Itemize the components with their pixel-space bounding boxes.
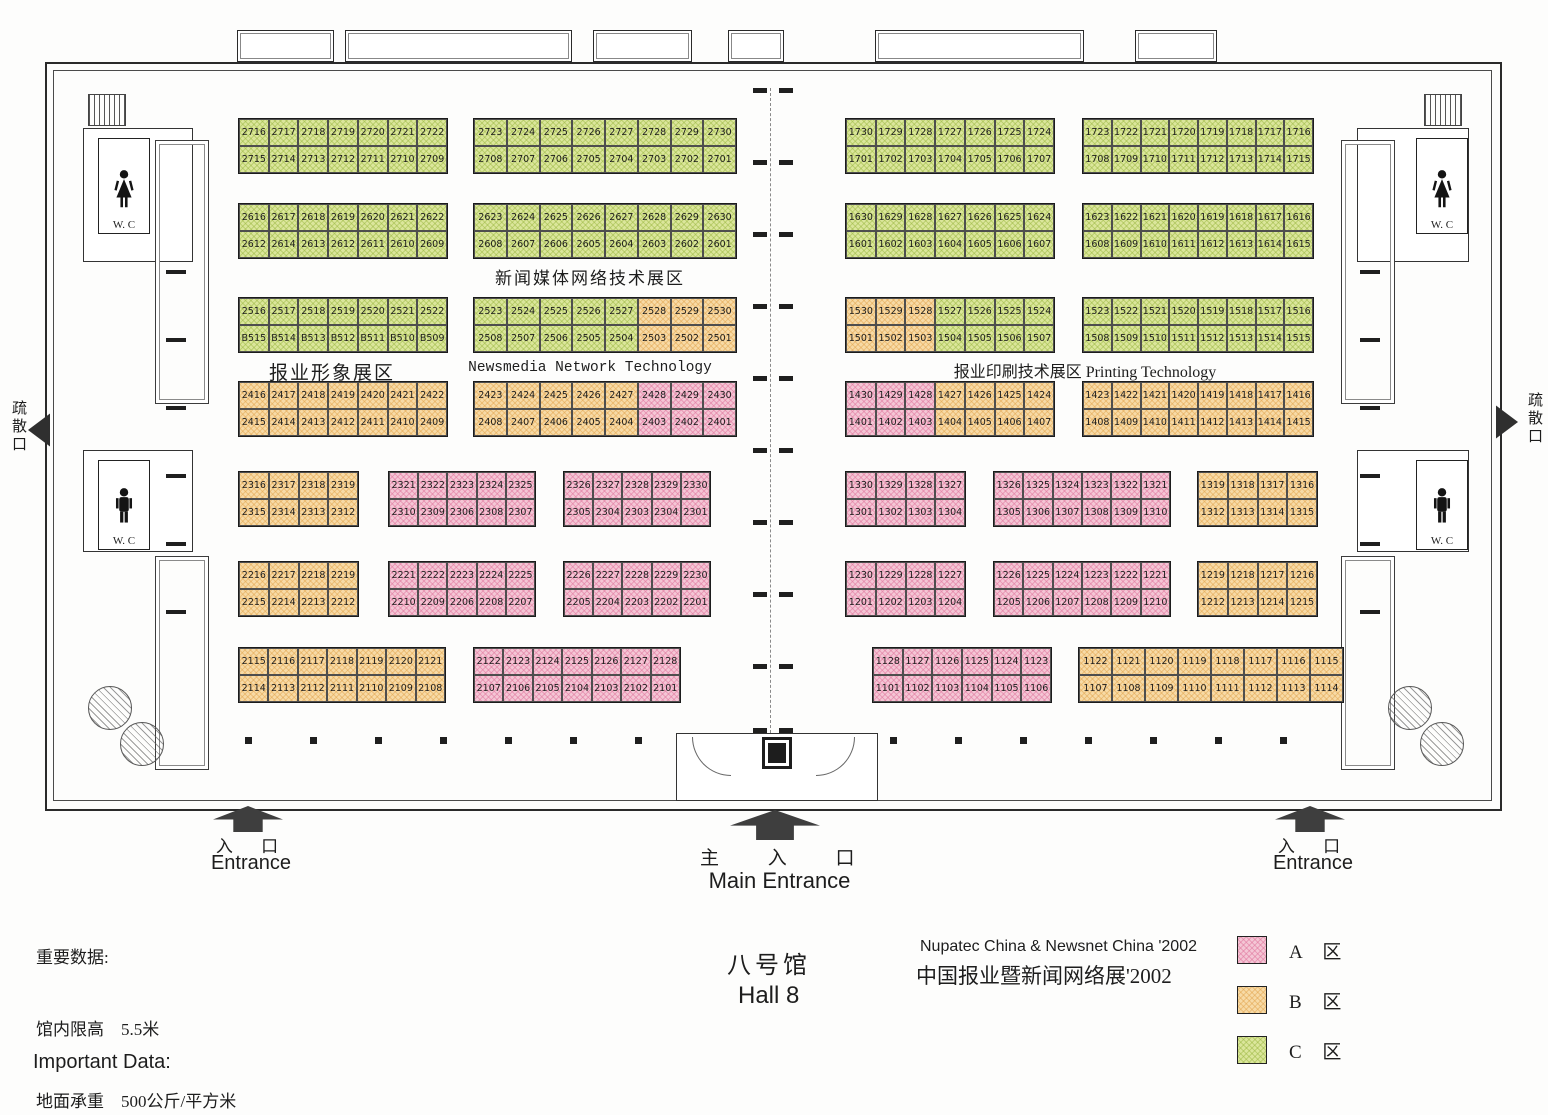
booth-cell: 2206 bbox=[447, 589, 476, 616]
legend-row-b: B 区 bbox=[1237, 986, 1349, 1014]
booth-cell: 2328 bbox=[622, 472, 651, 499]
wc-left-top: W. C bbox=[98, 138, 150, 234]
booth-cell: 2422 bbox=[417, 382, 447, 409]
booth-cell: 2721 bbox=[388, 119, 418, 146]
column-dot bbox=[635, 737, 642, 744]
booth-cell: 2313 bbox=[299, 499, 329, 526]
booth-cell: 2218 bbox=[299, 562, 329, 589]
booth-cell: 2308 bbox=[477, 499, 506, 526]
booth-cell: 2414 bbox=[269, 409, 299, 436]
booth-cell: 1115 bbox=[1310, 648, 1343, 675]
booth-cell: 2325 bbox=[506, 472, 535, 499]
booth-cell: 1528 bbox=[905, 298, 935, 325]
booth-cell: 1716 bbox=[1284, 119, 1313, 146]
booth-cell: 2105 bbox=[533, 675, 562, 702]
booth-cell: 1323 bbox=[1082, 472, 1111, 499]
booth-cell: 2406 bbox=[540, 409, 573, 436]
booth-cell: 2214 bbox=[269, 589, 299, 616]
booth-cell: 1611 bbox=[1169, 231, 1198, 258]
booth-block: 13191318131713161312131313141315 bbox=[1197, 471, 1318, 527]
booth-cell: 2201 bbox=[681, 589, 710, 616]
booth-cell: 1306 bbox=[1023, 499, 1052, 526]
booth-block: 22162217221822192215221422132212 bbox=[238, 561, 359, 617]
booth-cell: 2402 bbox=[671, 409, 704, 436]
evac-exit-right-label: 疏散口 bbox=[1524, 392, 1545, 446]
booth-cell: 2413 bbox=[298, 409, 328, 436]
booth-block: 1122112111201119111811171116111511071108… bbox=[1078, 647, 1344, 703]
booth-cell: 2125 bbox=[562, 648, 591, 675]
booth-cell: 2703 bbox=[638, 146, 671, 173]
booth-cell: 2611 bbox=[358, 231, 388, 258]
roof-monitor bbox=[345, 30, 572, 62]
column-tick bbox=[779, 728, 793, 733]
booth-cell: 1417 bbox=[1256, 382, 1285, 409]
booth-cell: 1723 bbox=[1083, 119, 1112, 146]
booth-cell: 2529 bbox=[671, 298, 704, 325]
column-tick bbox=[1360, 338, 1380, 342]
booth-cell: 1303 bbox=[906, 499, 936, 526]
booth-cell: 1217 bbox=[1258, 562, 1288, 589]
booth-cell: 1504 bbox=[935, 325, 965, 352]
booth-cell: 2219 bbox=[328, 562, 358, 589]
booth-cell: 1107 bbox=[1079, 675, 1112, 702]
booth-cell: 1315 bbox=[1287, 499, 1317, 526]
booth-cell: 2625 bbox=[540, 204, 573, 231]
booth-cell: 2604 bbox=[605, 231, 638, 258]
booth-cell: 1522 bbox=[1112, 298, 1141, 325]
booth-cell: 1409 bbox=[1112, 409, 1141, 436]
booth-block: 2115211621172118211921202121211421132112… bbox=[238, 647, 446, 703]
booth-cell: 1125 bbox=[962, 648, 992, 675]
booth-cell: 2114 bbox=[239, 675, 268, 702]
booth-block: 13301329132813271301130213031304 bbox=[845, 471, 966, 527]
column-tick bbox=[166, 270, 186, 274]
booth-cell: 2111 bbox=[327, 675, 356, 702]
booth-cell: 1619 bbox=[1198, 204, 1227, 231]
booth-cell: 1328 bbox=[906, 472, 936, 499]
booth-cell: 1330 bbox=[846, 472, 876, 499]
booth-cell: 2612 bbox=[239, 231, 269, 258]
booth-cell: 2420 bbox=[358, 382, 388, 409]
booth-cell: 1713 bbox=[1227, 146, 1256, 173]
booth-cell: 1402 bbox=[876, 409, 906, 436]
booth-cell: 2230 bbox=[681, 562, 710, 589]
booth-cell: 2428 bbox=[638, 382, 671, 409]
booth-cell: 1508 bbox=[1083, 325, 1112, 352]
booth-cell: 2710 bbox=[388, 146, 418, 173]
booth-cell: 1715 bbox=[1284, 146, 1313, 173]
booth-cell: 1208 bbox=[1082, 589, 1111, 616]
important-data-en: Important Data: Limited Ceiling Height: … bbox=[33, 992, 360, 1115]
booth-cell: 2713 bbox=[298, 146, 328, 173]
booth-cell: 1127 bbox=[903, 648, 933, 675]
column-dot bbox=[890, 737, 897, 744]
column-tick bbox=[1360, 542, 1380, 546]
booth-cell: 2314 bbox=[269, 499, 299, 526]
area-label-printing: 报业印刷技术展区 Printing Technology bbox=[920, 358, 1250, 382]
booth-cell: 1607 bbox=[1024, 231, 1054, 258]
booth-block: 2423242424252426242724282429243024082407… bbox=[473, 381, 737, 437]
booth-block: 1326132513241323132213211305130613071308… bbox=[993, 471, 1171, 527]
booth-cell: 2412 bbox=[328, 409, 358, 436]
column-tick bbox=[779, 520, 793, 525]
booth-cell: 2110 bbox=[357, 675, 386, 702]
floor-plan: W. C W. C W. C W. C bbox=[0, 0, 1548, 1115]
booth-cell: 2522 bbox=[417, 298, 447, 325]
booth-block: 1423142214211420141914181417141614081409… bbox=[1082, 381, 1314, 437]
booth-cell: 2508 bbox=[474, 325, 507, 352]
booth-cell: 2215 bbox=[239, 589, 269, 616]
booth-cell: 2323 bbox=[447, 472, 476, 499]
booth-cell: 1209 bbox=[1111, 589, 1140, 616]
booth-cell: 1304 bbox=[935, 499, 965, 526]
spiral-stair bbox=[1388, 686, 1432, 730]
booth-cell: 2227 bbox=[593, 562, 622, 589]
booth-cell: 1603 bbox=[905, 231, 935, 258]
area-label-newsmedia-en: Newsmedia Network Technology bbox=[455, 360, 725, 376]
column-tick bbox=[779, 376, 793, 381]
booth-cell: 2605 bbox=[572, 231, 605, 258]
column-tick bbox=[753, 592, 767, 597]
booth-cell: 2528 bbox=[638, 298, 671, 325]
booth-cell: B512 bbox=[328, 325, 358, 352]
booth-cell: 1102 bbox=[903, 675, 933, 702]
booth-cell: 2723 bbox=[474, 119, 507, 146]
booth-cell: 1721 bbox=[1141, 119, 1170, 146]
legend-label-b: B 区 bbox=[1289, 987, 1349, 1014]
column-tick bbox=[779, 232, 793, 237]
booth-block: 1430142914281427142614251424140114021403… bbox=[845, 381, 1055, 437]
booth-cell: 2612 bbox=[328, 231, 358, 258]
booth-cell: 1101 bbox=[873, 675, 903, 702]
booth-cell: 1419 bbox=[1198, 382, 1227, 409]
booth-cell: 1506 bbox=[995, 325, 1025, 352]
booth-cell: 1702 bbox=[876, 146, 906, 173]
booth-cell: 2720 bbox=[358, 119, 388, 146]
spiral-stair bbox=[1420, 722, 1464, 766]
hall-name-cn: 八号馆 bbox=[727, 945, 811, 980]
booth-cell: 1618 bbox=[1227, 204, 1256, 231]
booth-block: 2221222222232224222522102209220622082207 bbox=[388, 561, 536, 617]
booth-cell: 1521 bbox=[1141, 298, 1170, 325]
booth-cell: 2115 bbox=[239, 648, 268, 675]
booth-cell: 2716 bbox=[239, 119, 269, 146]
booth-cell: 1213 bbox=[1228, 589, 1258, 616]
booth-cell: 2530 bbox=[703, 298, 736, 325]
booth-cell: 2316 bbox=[239, 472, 269, 499]
booth-cell: 1623 bbox=[1083, 204, 1112, 231]
booth-cell: 2704 bbox=[605, 146, 638, 173]
wc-label: W. C bbox=[113, 219, 135, 231]
booth-cell: 2312 bbox=[328, 499, 358, 526]
booth-cell: 1726 bbox=[965, 119, 995, 146]
booth-cell: 2628 bbox=[638, 204, 671, 231]
booth-cell: 2715 bbox=[239, 146, 269, 173]
booth-block: 2723272427252726272727282729273027082707… bbox=[473, 118, 737, 174]
booth-cell: 1526 bbox=[965, 298, 995, 325]
booth-cell: 2304 bbox=[652, 499, 681, 526]
booth-cell: 2516 bbox=[239, 298, 269, 325]
column-tick bbox=[753, 664, 767, 669]
booth-cell: 2701 bbox=[703, 146, 736, 173]
booth-cell: 1507 bbox=[1024, 325, 1054, 352]
column-tick bbox=[166, 610, 186, 614]
booth-cell: 1612 bbox=[1198, 231, 1227, 258]
booth-cell: 2202 bbox=[652, 589, 681, 616]
column-tick bbox=[166, 338, 186, 342]
booth-cell: 1228 bbox=[906, 562, 936, 589]
booth-cell: 2401 bbox=[703, 409, 736, 436]
booth-cell: 1730 bbox=[846, 119, 876, 146]
booth-cell: 2626 bbox=[572, 204, 605, 231]
booth-cell: 1708 bbox=[1083, 146, 1112, 173]
column-dot bbox=[1150, 737, 1157, 744]
booth-cell: 2213 bbox=[299, 589, 329, 616]
booth-cell: 2321 bbox=[389, 472, 418, 499]
booth-cell: 1120 bbox=[1145, 648, 1178, 675]
booth-cell: 1326 bbox=[994, 472, 1023, 499]
booth-cell: 2630 bbox=[703, 204, 736, 231]
booth-cell: 2126 bbox=[592, 648, 621, 675]
booth-cell: 2109 bbox=[386, 675, 415, 702]
booth-cell: 2119 bbox=[357, 648, 386, 675]
booth-cell: 1530 bbox=[846, 298, 876, 325]
booth-cell: 2610 bbox=[388, 231, 418, 258]
column-dot bbox=[955, 737, 962, 744]
info-en-line: Important Data: bbox=[33, 1048, 360, 1076]
booth-cell: 2405 bbox=[572, 409, 605, 436]
booth-cell: 1226 bbox=[994, 562, 1023, 589]
booth-cell: 2507 bbox=[507, 325, 540, 352]
column-tick bbox=[166, 406, 186, 410]
booth-cell: 2709 bbox=[417, 146, 447, 173]
booth-cell: 2121 bbox=[416, 648, 445, 675]
booth-cell: 1103 bbox=[932, 675, 962, 702]
booth-cell: B513 bbox=[298, 325, 328, 352]
booth-cell: 2425 bbox=[540, 382, 573, 409]
booth-cell: 2426 bbox=[572, 382, 605, 409]
booth-cell: 1509 bbox=[1112, 325, 1141, 352]
booth-cell: 2607 bbox=[507, 231, 540, 258]
booth-cell: 2127 bbox=[621, 648, 650, 675]
booth-cell: 2525 bbox=[540, 298, 573, 325]
booth-cell: 2301 bbox=[681, 499, 710, 526]
column-dot bbox=[505, 737, 512, 744]
booth-cell: 1119 bbox=[1178, 648, 1211, 675]
booth-cell: 2225 bbox=[506, 562, 535, 589]
booth-cell: 2722 bbox=[417, 119, 447, 146]
booth-cell: 2123 bbox=[503, 648, 532, 675]
main-entrance-doorpost bbox=[762, 737, 792, 769]
column-tick bbox=[1360, 406, 1380, 410]
booth-cell: 1703 bbox=[905, 146, 935, 173]
evac-arrow-right-icon bbox=[1496, 404, 1518, 440]
booth-cell: 1614 bbox=[1256, 231, 1285, 258]
booth-cell: 2318 bbox=[299, 472, 329, 499]
booth-cell: 2315 bbox=[239, 499, 269, 526]
booth-cell: 1305 bbox=[994, 499, 1023, 526]
booth-cell: 2107 bbox=[474, 675, 503, 702]
booth-cell: 2711 bbox=[358, 146, 388, 173]
wc-label: W. C bbox=[1431, 219, 1453, 231]
booth-cell: 2326 bbox=[564, 472, 593, 499]
booth-cell: 2506 bbox=[540, 325, 573, 352]
booth-cell: 2306 bbox=[447, 499, 476, 526]
booth-cell: 1524 bbox=[1024, 298, 1054, 325]
booth-cell: 2223 bbox=[447, 562, 476, 589]
booth-cell: 1513 bbox=[1227, 325, 1256, 352]
booth-block: 1623162216211620161916181617161616081609… bbox=[1082, 203, 1314, 259]
booth-cell: 1117 bbox=[1244, 648, 1277, 675]
booth-cell: 1411 bbox=[1169, 409, 1198, 436]
booth-cell: 1701 bbox=[846, 146, 876, 173]
booth-cell: 1429 bbox=[876, 382, 906, 409]
booth-cell: 1329 bbox=[876, 472, 906, 499]
booth-cell: 1511 bbox=[1169, 325, 1198, 352]
booth-cell: 2324 bbox=[477, 472, 506, 499]
booth-cell: 1717 bbox=[1256, 119, 1285, 146]
legend-label-a: A 区 bbox=[1289, 937, 1349, 964]
booth-cell: 2617 bbox=[269, 204, 299, 231]
booth-cell: 1722 bbox=[1112, 119, 1141, 146]
booth-cell: 1529 bbox=[876, 298, 906, 325]
booth-cell: B510 bbox=[388, 325, 418, 352]
booth-cell: 1629 bbox=[876, 204, 906, 231]
booth-cell: 1610 bbox=[1141, 231, 1170, 258]
booth-cell: 2520 bbox=[358, 298, 388, 325]
booth-cell: 1620 bbox=[1169, 204, 1198, 231]
booth-cell: 2621 bbox=[388, 204, 418, 231]
booth-cell: 2228 bbox=[622, 562, 651, 589]
booth-cell: 1112 bbox=[1244, 675, 1277, 702]
booth-cell: 1210 bbox=[1141, 589, 1170, 616]
booth-cell: 1710 bbox=[1141, 146, 1170, 173]
column-tick bbox=[166, 474, 186, 478]
booth-cell: 2216 bbox=[239, 562, 269, 589]
booth-cell: 2424 bbox=[507, 382, 540, 409]
info-cn-line: 重要数据: bbox=[36, 946, 236, 970]
booth-cell: 2526 bbox=[572, 298, 605, 325]
booth-cell: 1121 bbox=[1112, 648, 1145, 675]
main-entrance-cn: 主 入 口 bbox=[700, 843, 860, 870]
booth-cell: 2616 bbox=[239, 204, 269, 231]
booth-cell: 2217 bbox=[269, 562, 299, 589]
booth-cell: 1714 bbox=[1256, 146, 1285, 173]
booth-cell: 2128 bbox=[651, 648, 680, 675]
booth-cell: 2317 bbox=[269, 472, 299, 499]
booth-cell: 2517 bbox=[269, 298, 299, 325]
booth-cell: 1628 bbox=[905, 204, 935, 231]
wc-right-top: W. C bbox=[1416, 138, 1468, 234]
booth-cell: 1427 bbox=[935, 382, 965, 409]
booth-cell: 1215 bbox=[1287, 589, 1317, 616]
column-tick bbox=[753, 160, 767, 165]
column-tick bbox=[753, 304, 767, 309]
booth-cell: 2706 bbox=[540, 146, 573, 173]
booth-cell: 2124 bbox=[533, 648, 562, 675]
booth-cell: 1216 bbox=[1287, 562, 1317, 589]
booth-cell: 2229 bbox=[652, 562, 681, 589]
booth-cell: 2724 bbox=[507, 119, 540, 146]
center-aisle-line bbox=[770, 88, 771, 738]
booth-cell: 2417 bbox=[269, 382, 299, 409]
booth-block: 2321232223232324232523102309230623082307 bbox=[388, 471, 536, 527]
booth-block: 2326232723282329233023052304230323042301 bbox=[563, 471, 711, 527]
booth-cell: 1527 bbox=[935, 298, 965, 325]
booth-cell: 1421 bbox=[1141, 382, 1170, 409]
booth-cell: 2629 bbox=[671, 204, 704, 231]
booth-cell: 2521 bbox=[388, 298, 418, 325]
booth-cell: 1512 bbox=[1198, 325, 1227, 352]
column-dot bbox=[1085, 737, 1092, 744]
legend-swatch-a bbox=[1237, 936, 1267, 964]
booth-cell: 1605 bbox=[965, 231, 995, 258]
booth-cell: 2212 bbox=[328, 589, 358, 616]
booth-cell: 1704 bbox=[935, 146, 965, 173]
female-figure-icon bbox=[1429, 165, 1455, 217]
booth-cell: 1523 bbox=[1083, 298, 1112, 325]
booth-cell: 1627 bbox=[935, 204, 965, 231]
wc-right-bottom: W. C bbox=[1416, 460, 1468, 550]
booth-cell: 2501 bbox=[703, 325, 736, 352]
booth-cell: 2620 bbox=[358, 204, 388, 231]
booth-cell: 1720 bbox=[1169, 119, 1198, 146]
evac-exit-left-label: 疏散口 bbox=[8, 400, 29, 454]
booth-cell: 1116 bbox=[1277, 648, 1310, 675]
booth-cell: 2613 bbox=[298, 231, 328, 258]
booth-block: 1630162916281627162616251624160116021603… bbox=[845, 203, 1055, 259]
booth-cell: 1626 bbox=[965, 204, 995, 231]
booth-cell: 2718 bbox=[298, 119, 328, 146]
column-dot bbox=[570, 737, 577, 744]
booth-cell: 1205 bbox=[994, 589, 1023, 616]
booth-block: 12301229122812271201120212031204 bbox=[845, 561, 966, 617]
booth-cell: 2419 bbox=[328, 382, 358, 409]
booth-cell: 1602 bbox=[876, 231, 906, 258]
roof-monitor bbox=[593, 30, 692, 62]
expo-title-cn: 中国报业暨新闻网络展'2002 bbox=[916, 960, 1172, 990]
booth-cell: 1123 bbox=[1021, 648, 1051, 675]
hall-name-en: Hall 8 bbox=[738, 982, 799, 1010]
main-entrance-en: Main Entrance bbox=[692, 868, 867, 894]
booth-cell: 1317 bbox=[1258, 472, 1288, 499]
booth-cell: 1525 bbox=[995, 298, 1025, 325]
spiral-stair bbox=[88, 686, 132, 730]
booth-cell: 1322 bbox=[1111, 472, 1140, 499]
booth-cell: 1406 bbox=[995, 409, 1025, 436]
booth-cell: 1518 bbox=[1227, 298, 1256, 325]
booth-cell: 1416 bbox=[1284, 382, 1313, 409]
booth-cell: 2226 bbox=[564, 562, 593, 589]
booth-cell: 1505 bbox=[965, 325, 995, 352]
booth-cell: 2113 bbox=[268, 675, 297, 702]
booth-cell: 1113 bbox=[1277, 675, 1310, 702]
booth-cell: 1705 bbox=[965, 146, 995, 173]
legend-row-a: A 区 bbox=[1237, 936, 1349, 964]
booth-cell: 1706 bbox=[995, 146, 1025, 173]
booth-cell: 2304 bbox=[593, 499, 622, 526]
legend-swatch-c bbox=[1237, 1036, 1267, 1064]
booth-cell: 2116 bbox=[268, 648, 297, 675]
main-entrance-arrow-icon bbox=[730, 810, 820, 840]
booth-cell: 2203 bbox=[622, 589, 651, 616]
booth-cell: 1403 bbox=[905, 409, 935, 436]
column-tick bbox=[753, 376, 767, 381]
booth-block: 1523152215211520151915181517151615081509… bbox=[1082, 297, 1314, 353]
booth-cell: 1515 bbox=[1284, 325, 1313, 352]
booth-cell: B515 bbox=[239, 325, 269, 352]
booth-cell: 1207 bbox=[1053, 589, 1082, 616]
